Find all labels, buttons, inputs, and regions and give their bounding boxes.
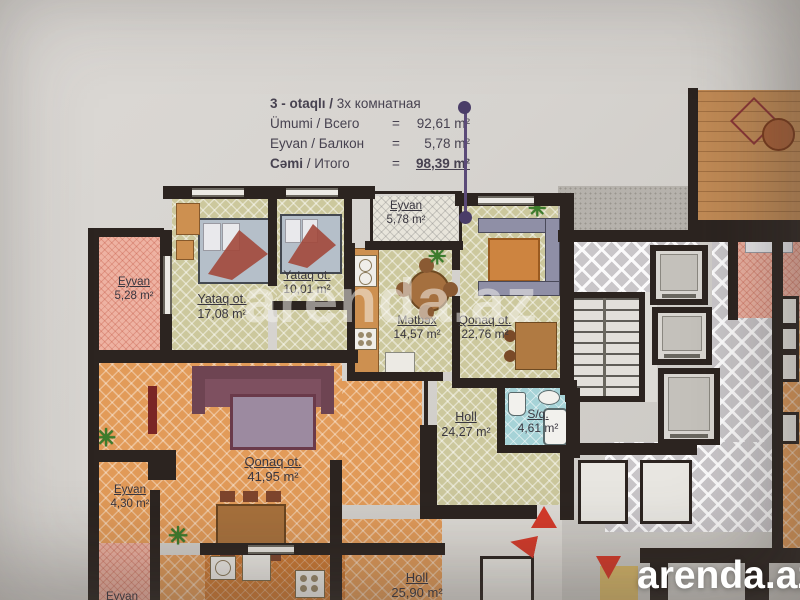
watermark: arenda.az bbox=[243, 266, 538, 337]
burner bbox=[366, 340, 372, 346]
burner bbox=[311, 575, 318, 582]
floorplan-photo: ✳ ✳ ✳ ✳ bbox=[0, 0, 800, 600]
balcony-rail bbox=[370, 191, 373, 244]
pillow bbox=[203, 223, 221, 251]
room-label-balcony-cut: Eyvan bbox=[106, 591, 138, 600]
balcony-rail bbox=[371, 191, 461, 194]
wall bbox=[150, 490, 160, 600]
row-label: / Итого bbox=[303, 156, 350, 171]
sofa-arm bbox=[192, 366, 205, 414]
wall bbox=[200, 543, 445, 555]
room-name: Holl bbox=[391, 570, 442, 585]
room-name: Eyvan bbox=[106, 591, 138, 600]
elevator-door bbox=[670, 434, 708, 438]
wall bbox=[688, 88, 698, 228]
sofa bbox=[192, 366, 334, 379]
wall bbox=[560, 450, 574, 520]
elevator-car bbox=[668, 377, 710, 431]
area-row-sum: Cəmi / Итого = 98,39 m² bbox=[270, 154, 470, 174]
elevator bbox=[658, 368, 720, 445]
arenda-logo: arenda.az bbox=[637, 554, 800, 598]
room-label-balcony-528: Eyvan5,28 m² bbox=[115, 276, 154, 303]
leader-dot bbox=[458, 101, 471, 114]
room-label-bathroom: S/q.4,61 m² bbox=[518, 407, 559, 435]
room-area: 4,30 m² bbox=[111, 498, 150, 512]
room-label-balcony-578: Eyvan5,78 m² bbox=[387, 200, 426, 227]
bed bbox=[280, 214, 342, 274]
chair bbox=[266, 491, 281, 502]
window bbox=[192, 188, 244, 197]
round-rug bbox=[762, 118, 795, 151]
sink-basin bbox=[215, 560, 231, 576]
room-name: Eyvan bbox=[387, 200, 426, 214]
apartment-type-az: 3 - otaqlı / bbox=[270, 96, 333, 111]
elevator-door bbox=[662, 294, 696, 298]
pillow bbox=[285, 219, 301, 243]
wall bbox=[365, 241, 463, 250]
wall bbox=[427, 505, 537, 519]
elevator bbox=[652, 307, 712, 365]
stairs bbox=[565, 292, 645, 402]
row-label: Eyvan / Балкон bbox=[270, 136, 364, 151]
room-label-hall-2590: Holl25,90 m² bbox=[391, 570, 442, 600]
leader-dot bbox=[459, 211, 472, 224]
chair bbox=[220, 491, 235, 502]
room-floor-neighbor-strip bbox=[342, 381, 422, 505]
equals-sign: = bbox=[388, 114, 404, 134]
burner bbox=[300, 575, 307, 582]
window bbox=[286, 188, 338, 197]
sofa-arm bbox=[321, 366, 334, 414]
room-floor-lower-apartment bbox=[157, 555, 205, 600]
plant-icon: ✳ bbox=[96, 424, 116, 453]
burner bbox=[311, 585, 318, 592]
window bbox=[478, 196, 534, 205]
wall bbox=[497, 380, 577, 388]
room-name: Eyvan bbox=[111, 484, 150, 498]
utility-room bbox=[578, 460, 628, 524]
window bbox=[248, 545, 294, 554]
room-area: 25,90 m² bbox=[391, 585, 442, 600]
row-value: 92,61 m² bbox=[404, 114, 470, 134]
room-label-living-4195: Qonaq ot.41,95 m² bbox=[244, 454, 301, 485]
room-area: 4,61 m² bbox=[518, 421, 559, 435]
wall bbox=[424, 381, 428, 427]
room-area: 24,27 m² bbox=[441, 425, 490, 440]
room-name: Eyvan bbox=[115, 276, 154, 290]
area-row-total: Ümumi / Всего = 92,61 m² bbox=[270, 114, 470, 134]
kitchen-cabinet bbox=[385, 352, 415, 374]
wall bbox=[560, 193, 574, 395]
elevator-car bbox=[662, 316, 702, 351]
equals-sign: = bbox=[388, 154, 404, 174]
burner bbox=[300, 585, 307, 592]
elevator bbox=[650, 245, 708, 305]
wall bbox=[88, 360, 99, 600]
elevator-car bbox=[660, 254, 698, 291]
apartment-type: 3 - otaqlı / 3х комнатная bbox=[270, 94, 475, 114]
room-label-balcony-430: Eyvan4,30 m² bbox=[111, 484, 150, 511]
chair bbox=[504, 350, 516, 362]
row-value: 98,39 m² bbox=[404, 154, 470, 174]
area-row-balcony: Eyvan / Балкон = 5,78 m² bbox=[270, 134, 470, 154]
tv-stand bbox=[148, 386, 157, 434]
bathroom-sink bbox=[538, 390, 560, 405]
stair-rail bbox=[603, 298, 606, 396]
wall bbox=[88, 228, 99, 360]
wall bbox=[95, 350, 358, 363]
row-value: 5,78 m² bbox=[404, 134, 470, 154]
room-name: Holl bbox=[441, 410, 490, 425]
nightstand bbox=[176, 240, 194, 260]
plant-icon: ✳ bbox=[168, 522, 188, 551]
rug bbox=[230, 394, 316, 450]
title-block: 3 - otaqlı / 3х комнатная Ümumi / Всего … bbox=[270, 94, 475, 174]
wall bbox=[688, 220, 800, 232]
wall bbox=[497, 380, 505, 453]
room-name: S/q. bbox=[518, 407, 559, 421]
kitchen-sink bbox=[210, 556, 236, 580]
room-name: Qonaq ot. bbox=[244, 454, 301, 469]
burner bbox=[358, 340, 364, 346]
wall bbox=[347, 372, 443, 381]
row-label: Ümumi / Всего bbox=[270, 116, 359, 131]
wall bbox=[772, 230, 783, 550]
utility-room bbox=[480, 556, 534, 600]
leader-line bbox=[464, 110, 467, 214]
room-area: 41,95 m² bbox=[244, 469, 301, 484]
elevator-door bbox=[664, 354, 700, 358]
equals-sign: = bbox=[388, 134, 404, 154]
wall bbox=[330, 460, 342, 600]
wall bbox=[148, 450, 176, 480]
room-label-bedroom-1: Yataq ot.17,08 m² bbox=[197, 292, 246, 322]
wall bbox=[575, 443, 697, 455]
fridge bbox=[242, 553, 271, 581]
room-name: Yataq ot. bbox=[197, 292, 246, 307]
window bbox=[163, 256, 172, 314]
wall bbox=[728, 232, 738, 320]
utility-room bbox=[640, 460, 692, 524]
chair bbox=[243, 491, 258, 502]
stove bbox=[295, 570, 325, 598]
room-area: 17,08 m² bbox=[197, 307, 246, 322]
room-area: 5,78 m² bbox=[387, 214, 426, 228]
wardrobe bbox=[176, 203, 200, 235]
row-label-strong: Cəmi bbox=[270, 156, 303, 171]
room-area: 5,28 m² bbox=[115, 290, 154, 304]
room-label-hall-2427: Holl24,27 m² bbox=[441, 410, 490, 440]
wall bbox=[92, 228, 164, 237]
apartment-type-ru: 3х комнатная bbox=[333, 96, 421, 111]
